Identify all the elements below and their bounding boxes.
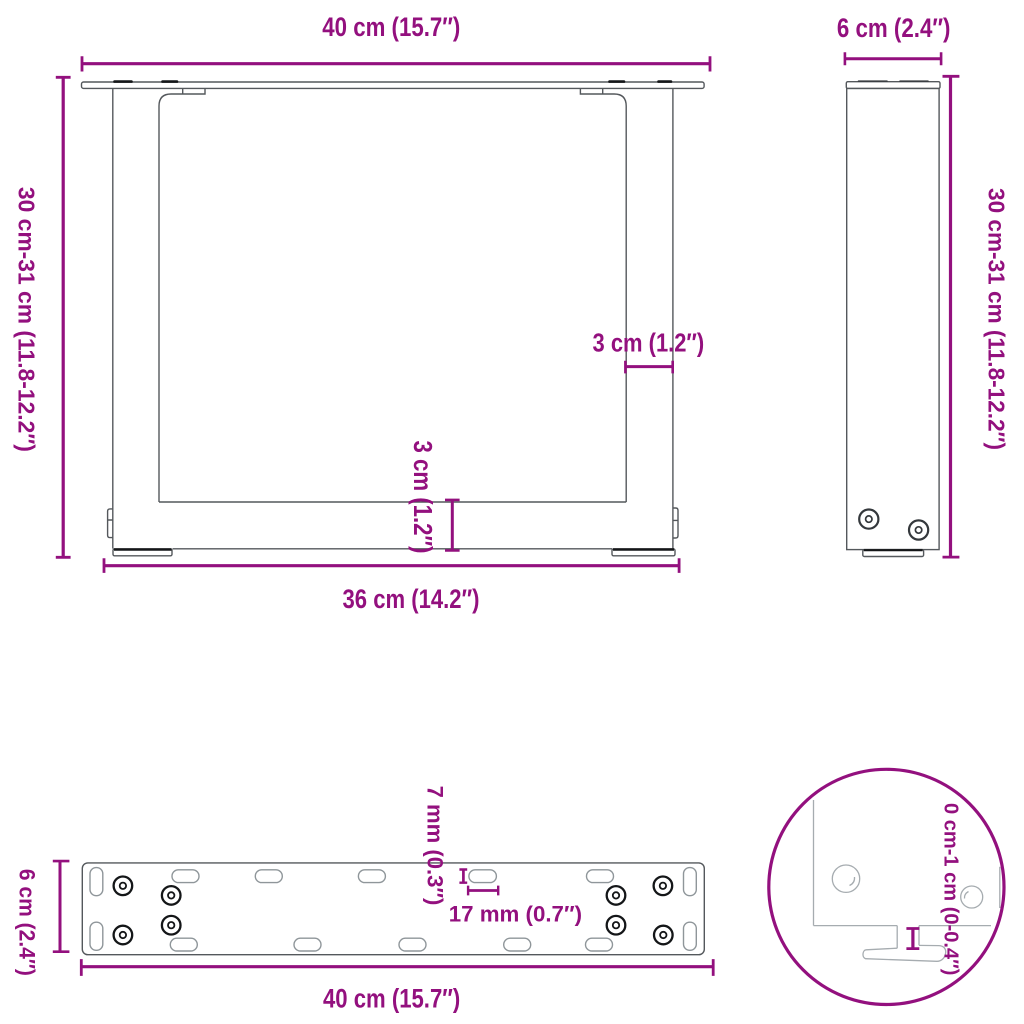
svg-text:0 cm-1 cm (0-0.4″): 0 cm-1 cm (0-0.4″) — [939, 803, 961, 976]
svg-text:3 cm (1.2″): 3 cm (1.2″) — [408, 441, 438, 554]
svg-text:40 cm (15.7″): 40 cm (15.7″) — [323, 984, 460, 1014]
svg-text:7 mm (0.3″): 7 mm (0.3″) — [423, 786, 448, 906]
svg-text:30 cm-31 cm (11.8-12.2″): 30 cm-31 cm (11.8-12.2″) — [984, 188, 1010, 450]
svg-text:30 cm-31 cm (11.8-12.2″): 30 cm-31 cm (11.8-12.2″) — [13, 187, 39, 452]
svg-text:6 cm (2.4″): 6 cm (2.4″) — [837, 13, 951, 43]
svg-text:40 cm (15.7″): 40 cm (15.7″) — [322, 12, 460, 42]
svg-text:3 cm (1.2″): 3 cm (1.2″) — [593, 327, 705, 357]
svg-text:6 cm (2.4″): 6 cm (2.4″) — [15, 869, 40, 976]
svg-text:36 cm (14.2″): 36 cm (14.2″) — [343, 584, 480, 614]
svg-text:17 mm (0.7″): 17 mm (0.7″) — [449, 901, 582, 926]
